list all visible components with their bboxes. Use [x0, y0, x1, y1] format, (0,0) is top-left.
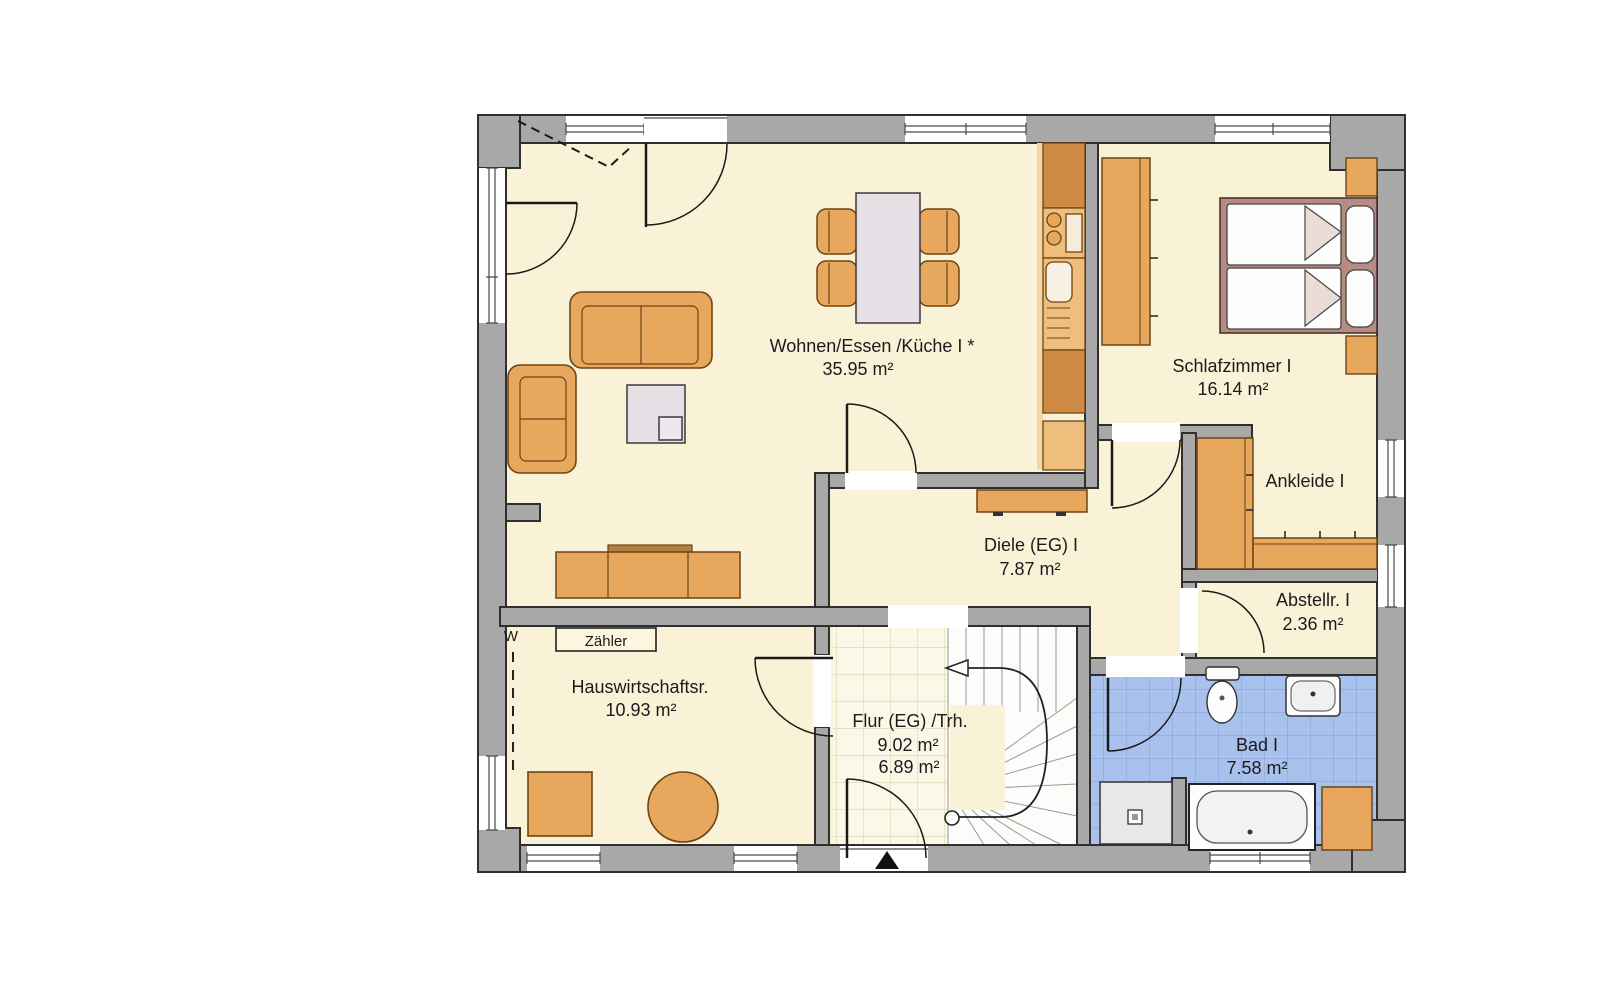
- wall-hwr-flur-upper: [815, 473, 829, 655]
- wall-bedroom-diele-stub: [1098, 425, 1114, 440]
- nightstand-1: [1346, 158, 1377, 196]
- window-hwr-bottom-1: [527, 846, 600, 871]
- washbasin: [1286, 676, 1340, 716]
- diele-sideboard: [977, 490, 1087, 516]
- bath-cabinet: [1322, 787, 1372, 850]
- opening-flur-hwr: [813, 655, 831, 727]
- window-entry-sidelight: [566, 116, 644, 142]
- window-hwr-left: [479, 756, 505, 830]
- shower: [1100, 782, 1172, 844]
- hwr-appliance-round: [648, 772, 718, 842]
- entry-door-opening: [644, 116, 727, 142]
- label-hwr-area: 10.93 m²: [605, 700, 676, 720]
- label-washer: W: [504, 628, 519, 645]
- wall-living-hwr-flur: [500, 607, 1090, 626]
- label-hwr: Hauswirtschaftsr.: [571, 677, 708, 697]
- bedroom-wardrobe: [1102, 158, 1158, 345]
- toilet: [1206, 667, 1239, 723]
- kitchen-counter: [1037, 143, 1085, 470]
- wall-stairs-bad: [1077, 626, 1090, 845]
- pillow-1: [1346, 206, 1374, 263]
- label-flur-area-alt: 6.89 m²: [878, 757, 939, 777]
- label-meter-box: Zähler: [585, 633, 628, 650]
- double-bed: [1220, 198, 1377, 333]
- corner-pier-top-left: [478, 115, 520, 168]
- sofa-large: [570, 292, 712, 368]
- label-schlafzimmer: Schlafzimmer I: [1172, 356, 1291, 376]
- tv-lowboard: [556, 545, 740, 598]
- opening-living-diele: [845, 471, 917, 490]
- wall-hwr-flur-lower: [815, 727, 829, 845]
- label-flur-area: 9.02 m²: [877, 735, 938, 755]
- label-ankleide: Ankleide I: [1265, 471, 1344, 491]
- window-ankleide-right: [1378, 440, 1404, 497]
- house-entrance-opening: [840, 846, 928, 871]
- window-hwr-bottom-2: [734, 846, 797, 871]
- wall-pier-left: [506, 504, 540, 521]
- window-living-top: [905, 116, 1026, 142]
- label-bad-area: 7.58 m²: [1226, 758, 1287, 778]
- kitchen-tall-cabinet: [1043, 143, 1085, 208]
- coffee-table: [627, 385, 685, 443]
- opening-diele-bedroom: [1112, 423, 1180, 442]
- label-schlafzimmer-area: 16.14 m²: [1197, 379, 1268, 399]
- pillow-2: [1346, 270, 1374, 327]
- wall-ankleide-abstellraum: [1182, 569, 1378, 582]
- sofa-small: [508, 365, 576, 473]
- opening-diele-abstellraum: [1180, 588, 1198, 653]
- bathtub: [1189, 784, 1315, 850]
- label-bad: Bad I: [1236, 735, 1278, 755]
- window-bedroom-top: [1215, 116, 1330, 142]
- label-abstellraum-area: 2.36 m²: [1282, 614, 1343, 634]
- label-abstellraum: Abstellr. I: [1276, 590, 1350, 610]
- window-abstellraum-right: [1378, 545, 1404, 607]
- kitchen-base-cabinet: [1043, 350, 1085, 413]
- floor-plan-drawing: Wohnen/Essen /Küche I * 35.95 m² Schlafz…: [0, 0, 1600, 1000]
- corner-pier-bottom-left: [478, 828, 520, 872]
- label-flur: Flur (EG) /Trh.: [852, 711, 967, 731]
- nightstand-2: [1346, 336, 1377, 374]
- kitchen-end-cabinet: [1043, 421, 1085, 470]
- label-diele: Diele (EG) I: [984, 535, 1078, 555]
- label-wohnen: Wohnen/Essen /Küche I *: [770, 336, 975, 356]
- wall-kitchen-bedroom: [1085, 143, 1098, 488]
- window-living-left: [479, 168, 505, 323]
- opening-diele-bad: [1106, 656, 1185, 677]
- label-diele-area: 7.87 m²: [999, 559, 1060, 579]
- label-wohnen-area: 35.95 m²: [822, 359, 893, 379]
- hwr-appliance-square: [528, 772, 592, 836]
- stair-start-marker: [945, 811, 959, 825]
- wall-shower-stub: [1172, 778, 1186, 845]
- opening-diele-flur: [888, 605, 968, 628]
- floor-plan-page: Wohnen/Essen /Küche I * 35.95 m² Schlafz…: [0, 0, 1600, 1000]
- dining-table: [856, 193, 920, 323]
